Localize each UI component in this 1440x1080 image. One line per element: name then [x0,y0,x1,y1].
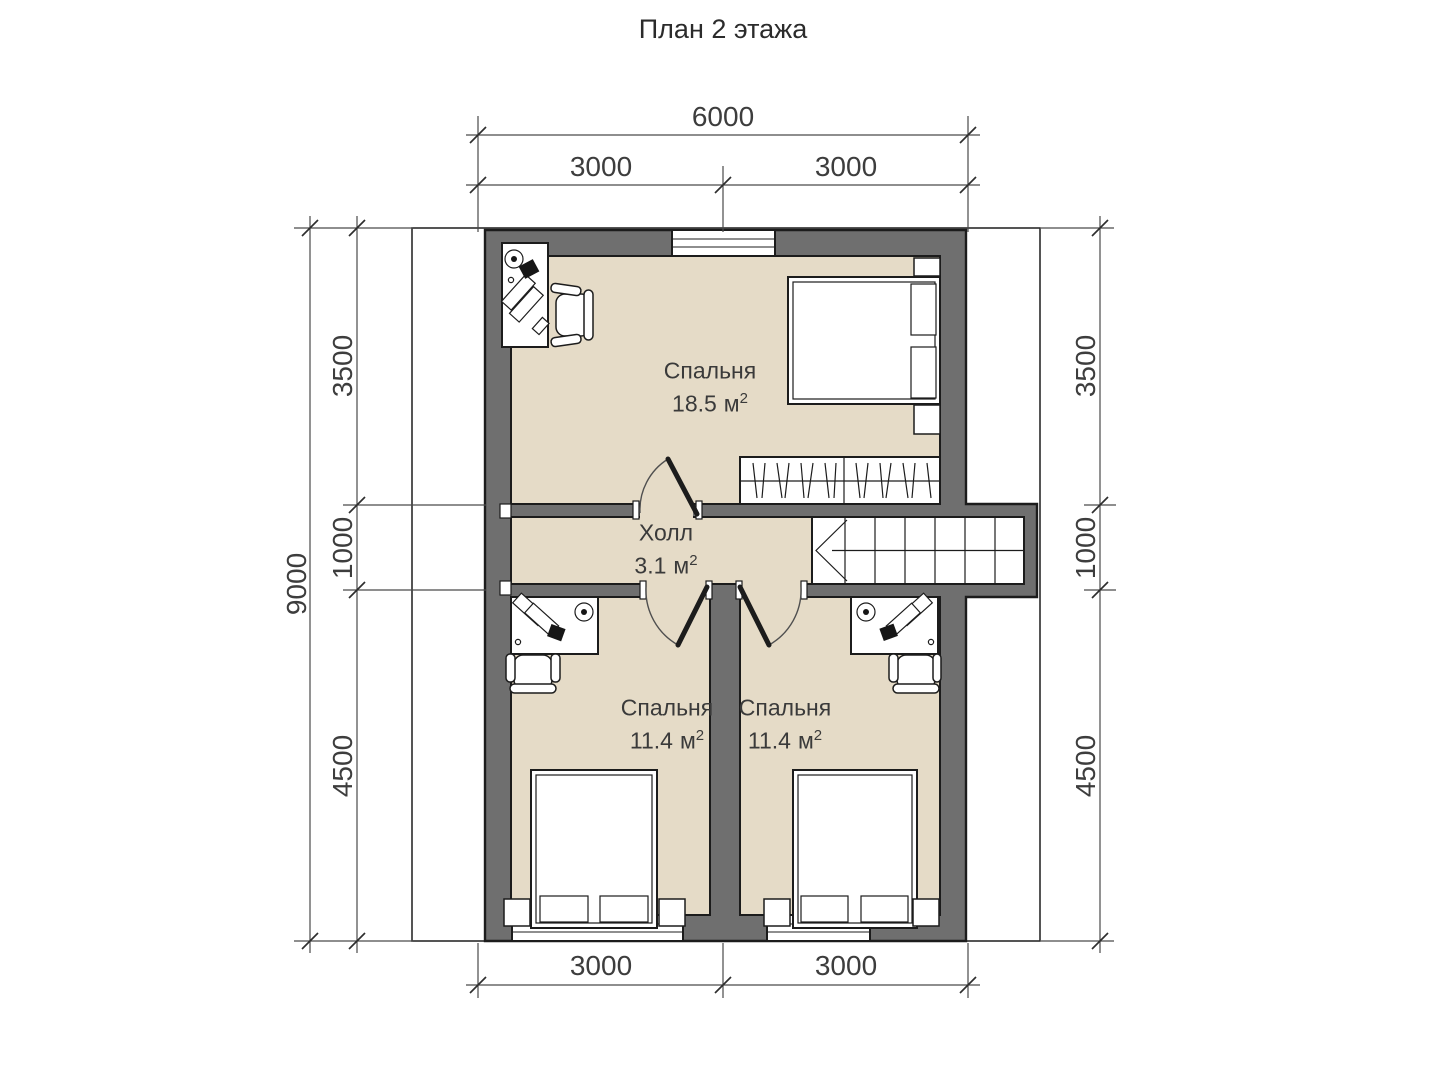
nightstand [914,258,940,276]
area-unit: м2 [798,727,822,753]
pillow [911,347,936,398]
pillow [861,896,908,922]
area-unit: м2 [673,552,697,578]
room-area: 11.4м2 [739,722,831,755]
office-chair-top [550,283,593,347]
room-label-bedroom-top: Спальня 18.5м2 [664,357,756,418]
room-name: Спальня [621,694,713,722]
office-chair-right [889,654,941,693]
area-value: 11.4 [630,727,673,753]
dim-top-seg-2: 3000 [815,151,877,183]
room-label-bedroom-right: Спальня 11.4м2 [739,694,831,755]
desk-right-bedroom [851,593,938,654]
pillow [600,896,648,922]
room-label-bedroom-left: Спальня 11.4м2 [621,694,713,755]
area-value: 11.4 [748,727,791,753]
nightstand [504,899,530,926]
dim-bottom-seg-2: 3000 [815,950,877,982]
staircase [812,517,1024,584]
dim-right-seg-2: 1000 [1070,517,1102,579]
dim-right-seg-3: 4500 [1070,735,1102,797]
dim-bottom-seg-1: 3000 [570,950,632,982]
pillow [801,896,848,922]
pillow [911,284,936,335]
area-unit: м2 [724,390,748,416]
threshold-left-door [645,580,706,600]
dim-left-seg-1: 3500 [327,335,359,397]
nightstand [659,899,685,926]
dim-top-seg-1: 3000 [570,151,632,183]
floor-plan-page: План 2 этажа [0,0,1440,1080]
wall-cap [500,504,511,518]
desk-top-bedroom [501,243,549,347]
window-top [672,230,775,256]
dim-left-seg-3: 4500 [327,735,359,797]
door-jamb [640,581,646,599]
room-label-hall: Холл 3.1м2 [634,519,697,580]
dim-right-seg-1: 3500 [1070,335,1102,397]
door-jamb [633,501,639,519]
threshold-top-door [640,501,693,520]
office-chair-left [506,654,560,693]
bed-double-right [793,770,917,928]
room-name: Холл [634,519,697,547]
door-jamb [801,581,807,599]
bed-double-left [531,770,657,928]
room-area: 18.5м2 [664,385,756,418]
nightstand [764,899,790,926]
nightstand [913,899,939,926]
area-unit: м2 [680,727,704,753]
room-name: Спальня [664,357,756,385]
desk-left-bedroom [511,593,598,654]
bed-double-top [788,277,940,404]
area-value: 18.5 [672,390,717,416]
nightstand [914,405,940,434]
area-value: 3.1 [634,552,666,578]
room-area: 11.4м2 [621,722,713,755]
wardrobe [740,457,940,504]
wall-cap [500,581,511,595]
pillow [540,896,588,922]
floor-plan-drawing [0,0,1440,1080]
dim-top-total: 6000 [692,101,754,133]
dim-left-seg-2: 1000 [327,517,359,579]
dim-left-total: 9000 [281,553,313,615]
room-name: Спальня [739,694,831,722]
threshold-right-door [742,580,802,600]
room-area: 3.1м2 [634,547,697,580]
